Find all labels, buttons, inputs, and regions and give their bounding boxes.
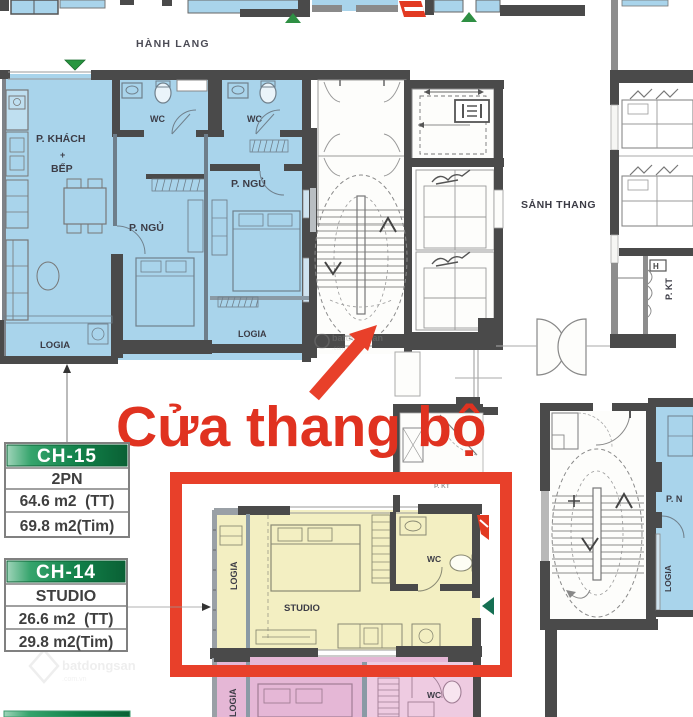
- svg-text:LOGIA: LOGIA: [229, 561, 239, 590]
- svg-text:P. NGỦ: P. NGỦ: [231, 177, 266, 190]
- svg-text:H: H: [653, 262, 659, 271]
- svg-text:STUDIO: STUDIO: [36, 588, 96, 605]
- svg-text:WC: WC: [247, 114, 262, 124]
- svg-text:P. N: P. N: [666, 494, 682, 504]
- svg-text:.com.vn: .com.vn: [62, 676, 87, 683]
- svg-text:P. NGỦ: P. NGỦ: [129, 221, 164, 234]
- svg-text:WC: WC: [150, 114, 165, 124]
- svg-text:26.6 m2 (TT): 26.6 m2 (TT): [19, 611, 114, 628]
- svg-text:CH-14: CH-14: [36, 562, 96, 583]
- svg-text:Cửa thang bộ: Cửa thang bộ: [116, 395, 487, 459]
- svg-text:SẢNH THANG: SẢNH THANG: [521, 198, 596, 211]
- svg-text:HÀNH LANG: HÀNH LANG: [136, 37, 210, 50]
- svg-text:BẾP: BẾP: [51, 162, 73, 175]
- svg-text:WC: WC: [427, 690, 441, 700]
- svg-text:WC: WC: [427, 554, 441, 564]
- svg-text:69.8 m2(Tim): 69.8 m2(Tim): [20, 518, 114, 535]
- svg-text:2PN: 2PN: [51, 471, 82, 488]
- svg-text:29.8 m2(Tim): 29.8 m2(Tim): [19, 634, 113, 651]
- svg-text:P. KT: P. KT: [664, 278, 674, 300]
- svg-text:LOGIA: LOGIA: [40, 340, 70, 351]
- svg-text:LOGIA: LOGIA: [228, 688, 238, 717]
- svg-text:LOGIA: LOGIA: [663, 565, 673, 592]
- svg-text:P. KHÁCH: P. KHÁCH: [36, 132, 85, 145]
- svg-text:CH-15: CH-15: [37, 446, 97, 467]
- svg-text:64.6 m2 (TT): 64.6 m2 (TT): [20, 493, 115, 510]
- svg-text:STUDIO: STUDIO: [284, 603, 320, 614]
- svg-text:LOGIA: LOGIA: [238, 329, 267, 339]
- svg-text:P. KT: P. KT: [434, 483, 450, 490]
- svg-text:+: +: [60, 150, 65, 160]
- svg-text:batdongsan: batdongsan: [62, 658, 136, 673]
